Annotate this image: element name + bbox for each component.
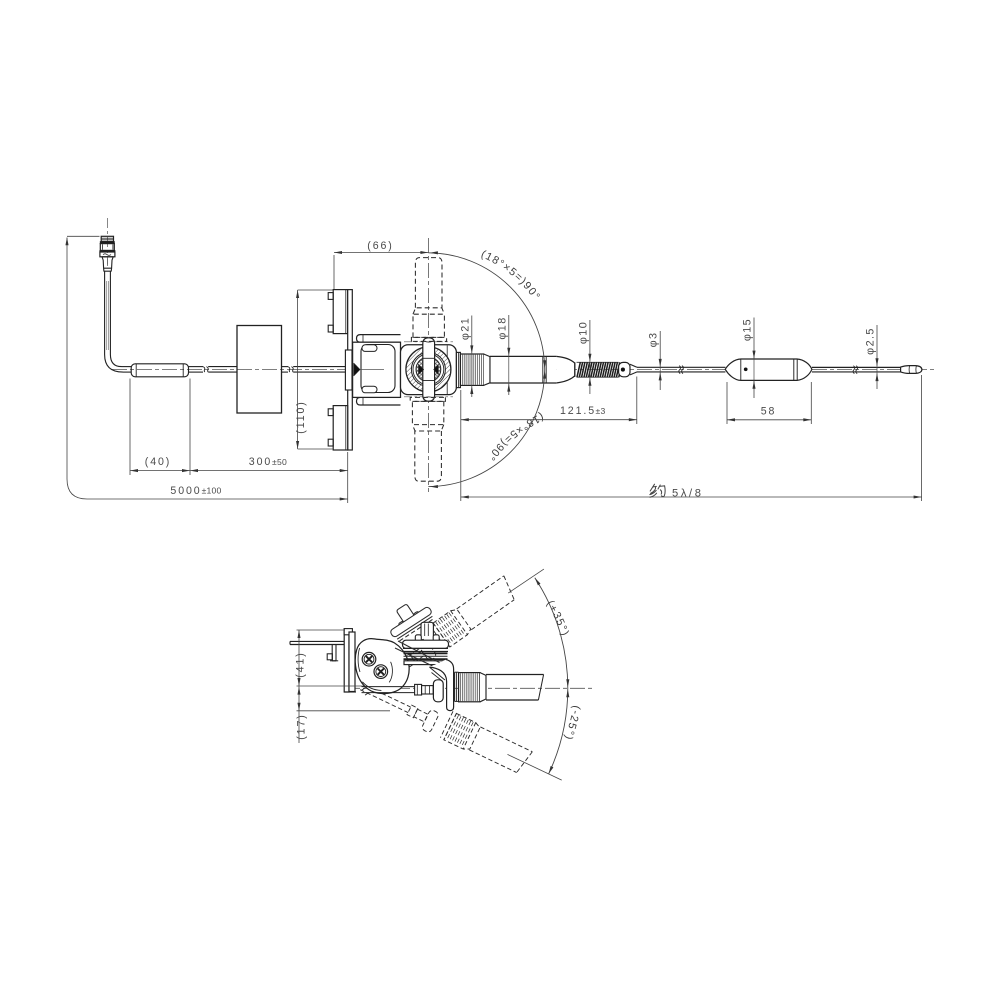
svg-text:58: 58 xyxy=(761,405,777,417)
svg-text:φ2.5: φ2.5 xyxy=(864,327,876,355)
svg-text:5000: 5000 xyxy=(170,485,201,497)
svg-text:(41): (41) xyxy=(295,651,307,677)
svg-text:±3: ±3 xyxy=(596,406,606,416)
svg-text:φ21: φ21 xyxy=(459,317,471,340)
svg-text:±100: ±100 xyxy=(202,486,222,496)
svg-text:(110): (110) xyxy=(295,400,307,433)
svg-text:(66): (66) xyxy=(367,240,393,252)
svg-text:φ18: φ18 xyxy=(496,316,508,339)
svg-text:φ10: φ10 xyxy=(578,321,590,344)
svg-text:(17): (17) xyxy=(296,713,308,739)
svg-text:300: 300 xyxy=(249,456,272,468)
svg-text:±50: ±50 xyxy=(272,457,287,467)
svg-text:φ3: φ3 xyxy=(647,332,659,348)
svg-text:φ15: φ15 xyxy=(741,318,753,341)
svg-text:5λ/8: 5λ/8 xyxy=(672,488,704,500)
svg-text:121.5: 121.5 xyxy=(560,405,596,417)
svg-text:(40): (40) xyxy=(145,456,171,468)
